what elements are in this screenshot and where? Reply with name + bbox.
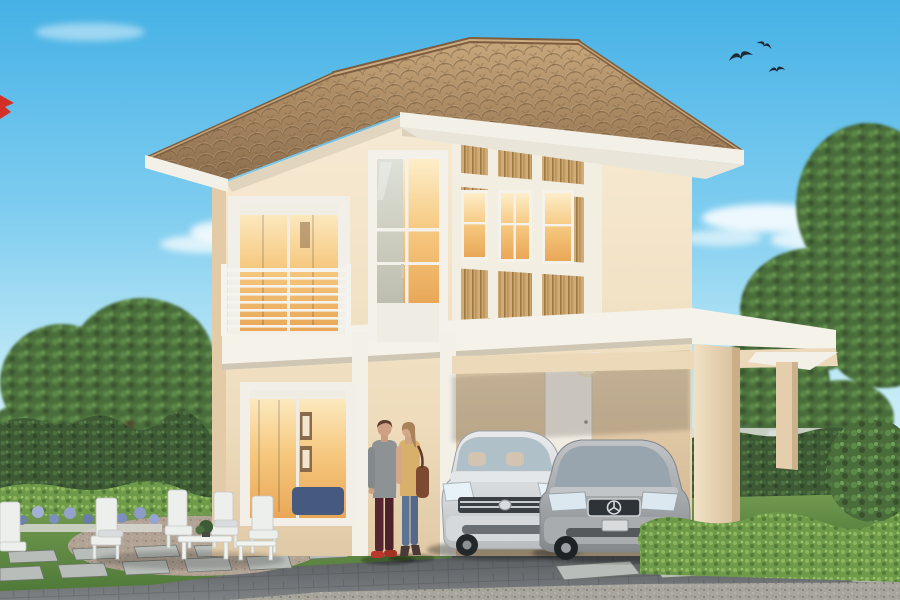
- spandrel: [377, 303, 439, 342]
- window-handle: [401, 264, 404, 278]
- gray-sweater: [372, 440, 397, 498]
- house-exterior-render: [0, 0, 900, 600]
- headlight-right: [641, 492, 678, 511]
- furniture-shadow: [95, 551, 285, 569]
- intake: [462, 525, 548, 534]
- carport-pillar-rear: [776, 362, 798, 470]
- upper-window-2: [498, 190, 532, 262]
- carport-inner-shadow: [452, 362, 690, 442]
- headlight-left: [548, 492, 587, 511]
- shoulder-bag: [416, 466, 429, 498]
- upper-window-3: [542, 190, 574, 264]
- stair-window: [368, 150, 448, 342]
- interior-picture: [300, 222, 310, 248]
- upper-window-1: [461, 190, 488, 260]
- van-badge: [499, 500, 511, 510]
- interior-sofa: [292, 487, 344, 515]
- license-plate: [602, 520, 628, 531]
- render-canvas: [0, 0, 900, 600]
- mullion: [532, 140, 542, 318]
- hood: [450, 472, 558, 482]
- planter-edge: [0, 524, 162, 532]
- small-bush: [638, 520, 690, 560]
- hand: [369, 488, 375, 494]
- mullion: [452, 130, 461, 320]
- balcony: [221, 196, 351, 336]
- red-shoe: [371, 551, 384, 558]
- mullion: [488, 136, 498, 318]
- red-shoe: [384, 550, 397, 557]
